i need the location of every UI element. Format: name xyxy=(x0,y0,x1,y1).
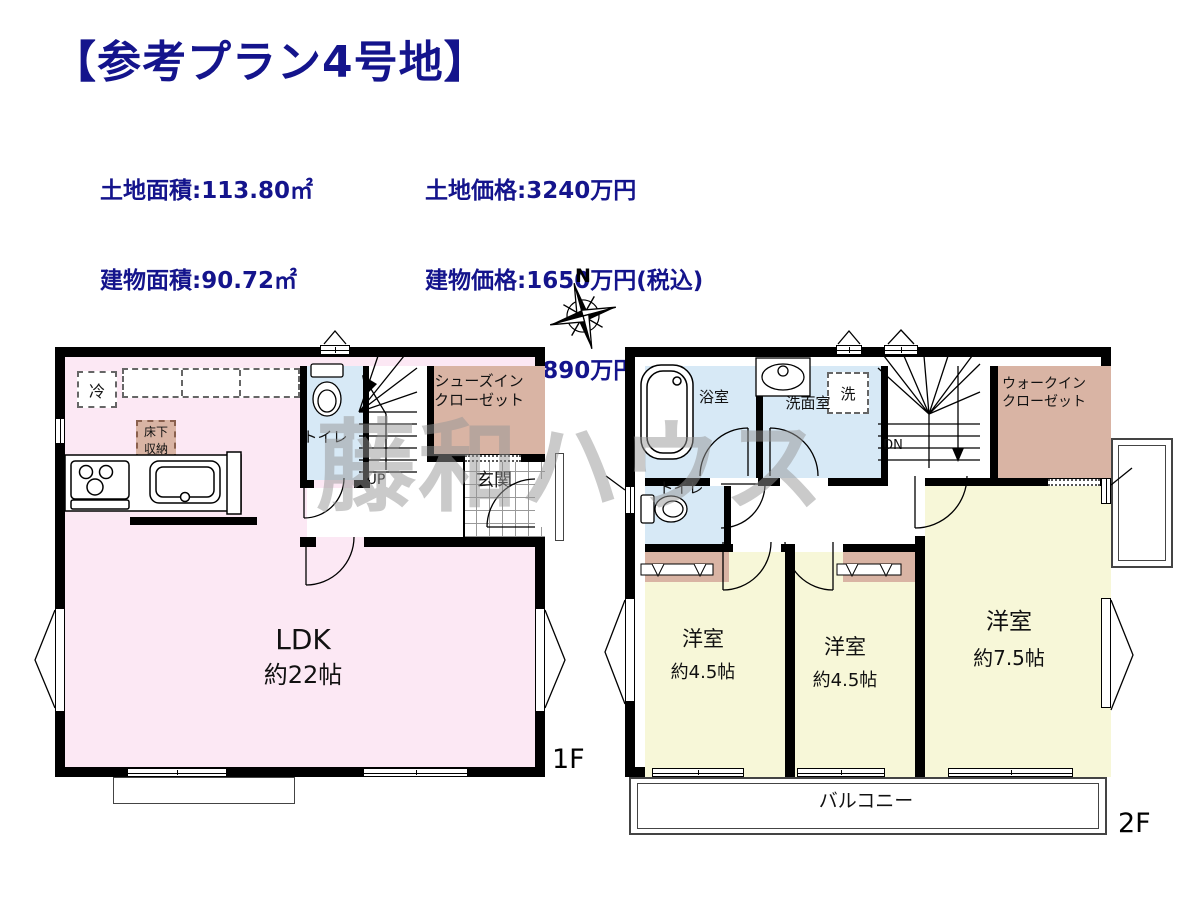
wall xyxy=(756,366,763,478)
laundry-box: 洗 xyxy=(827,372,869,414)
floor1-toilet-label: トイレ xyxy=(302,428,347,447)
wall xyxy=(758,478,780,486)
wall xyxy=(915,552,925,777)
bedroom3-label: 洋室 xyxy=(986,608,1032,637)
wall xyxy=(427,366,434,462)
kitchen-cabinets xyxy=(122,368,300,398)
floor2-bedroom2 xyxy=(795,552,915,777)
window xyxy=(1101,598,1111,708)
bedroom2-label: 洋室 xyxy=(824,634,866,660)
wall xyxy=(645,544,733,552)
window xyxy=(836,345,862,355)
window xyxy=(535,608,545,712)
wall xyxy=(363,366,369,488)
wall xyxy=(300,366,307,488)
wall xyxy=(881,366,888,478)
wall xyxy=(915,536,925,552)
wall xyxy=(300,537,316,547)
building-price: 建物価格:1650万円(税込) xyxy=(425,266,703,296)
floor1-label: 1F xyxy=(552,744,585,775)
floor2-bath-room xyxy=(645,366,756,478)
page-title: 【参考プラン4号地】 xyxy=(52,26,489,90)
bedroom1-closet xyxy=(645,552,729,582)
walkin-closet-opening xyxy=(1048,479,1100,486)
window xyxy=(55,418,65,444)
bath-label: 浴室 xyxy=(699,388,729,407)
shoes-closet-line2: クローゼット xyxy=(434,391,524,410)
window xyxy=(1101,478,1111,504)
land-price: 土地価格:3240万円 xyxy=(425,176,703,206)
window xyxy=(363,768,468,777)
wall xyxy=(990,366,998,478)
wic-line1: ウォークイン xyxy=(1002,376,1086,394)
bedroom1-label: 洋室 xyxy=(682,626,724,652)
laundry-label: 洗 xyxy=(840,383,855,404)
entrance-porch-step xyxy=(555,453,564,541)
entrance-step-line xyxy=(463,462,465,540)
top-window-icon xyxy=(838,331,860,344)
wall xyxy=(785,552,795,777)
top-window-icon xyxy=(324,331,346,344)
bedroom2-closet xyxy=(843,552,915,582)
floor2-label: 2F xyxy=(1118,808,1151,839)
wall xyxy=(364,537,545,547)
entrance-label: 玄関 xyxy=(476,470,512,493)
floor2-staircase xyxy=(888,366,990,478)
casement-window-icon xyxy=(1111,600,1133,710)
window xyxy=(625,598,635,702)
floor1-porch xyxy=(113,777,295,804)
cabinet-divider xyxy=(239,370,241,396)
cabinet-divider xyxy=(181,370,183,396)
floor1-toilet-room xyxy=(307,366,363,480)
wall xyxy=(300,480,314,488)
stairs-down-label: DN xyxy=(883,438,903,454)
floor2-plan: 洗 xyxy=(625,347,1111,777)
front-door-opening xyxy=(535,479,545,527)
underfloor-label-2: 収納 xyxy=(138,441,174,458)
floor2-toilet-label: トイレ xyxy=(658,479,703,498)
land-area: 土地面積:113.80㎡ xyxy=(100,176,313,206)
side-balcony-inner xyxy=(1118,445,1166,561)
shoes-closet-line1: シューズイン xyxy=(434,372,524,391)
floor1-plan: 冷 床下 収納 xyxy=(55,347,545,777)
bedroom3-size: 約7.5帖 xyxy=(973,646,1045,671)
casement-window-icon xyxy=(545,610,565,708)
casement-window-icon xyxy=(605,600,625,704)
kitchen-base-wall xyxy=(130,517,257,525)
window xyxy=(127,768,227,777)
bedroom1-size: 約4.5帖 xyxy=(671,662,736,685)
window xyxy=(652,768,744,777)
shoes-closet-label: シューズイン クローゼット xyxy=(434,372,524,410)
window xyxy=(625,486,635,514)
underfloor-label-1: 床下 xyxy=(138,424,174,441)
wall xyxy=(828,478,888,486)
window xyxy=(797,768,885,777)
bedroom2-size: 約4.5帖 xyxy=(813,670,878,693)
floor1-hall2 xyxy=(307,488,463,537)
building-area: 建物面積:90.72㎡ xyxy=(100,266,313,296)
underfloor-storage-box: 床下 収納 xyxy=(136,420,176,460)
window-slash xyxy=(606,476,625,490)
fridge-box: 冷 xyxy=(77,371,117,408)
wall xyxy=(781,544,795,552)
window xyxy=(884,345,918,355)
wall xyxy=(843,544,915,552)
floor2-hall xyxy=(731,486,915,544)
shoes-closet-opening xyxy=(465,455,521,462)
ldk-size-label: 約22帖 xyxy=(264,660,343,690)
top-window-icon xyxy=(888,330,914,344)
walkin-closet-label: ウォークイン クローゼット xyxy=(1002,376,1086,411)
window xyxy=(948,768,1073,777)
balcony-label: バルコニー xyxy=(819,790,914,814)
stairs-up-label: UP xyxy=(367,472,386,490)
wall xyxy=(925,478,990,486)
window xyxy=(320,345,350,355)
window xyxy=(55,608,65,712)
floor-plan-flyer: 【参考プラン4号地】 土地面積:113.80㎡ 建物面積:90.72㎡ 1F:4… xyxy=(0,0,1200,900)
ldk-label: LDK xyxy=(275,622,331,657)
side-balcony xyxy=(1111,438,1173,568)
wall xyxy=(724,486,731,544)
washroom-label: 洗面室 xyxy=(785,394,830,413)
fridge-label: 冷 xyxy=(89,378,105,402)
wic-line2: クローゼット xyxy=(1002,394,1086,412)
casement-window-icon xyxy=(35,610,55,708)
